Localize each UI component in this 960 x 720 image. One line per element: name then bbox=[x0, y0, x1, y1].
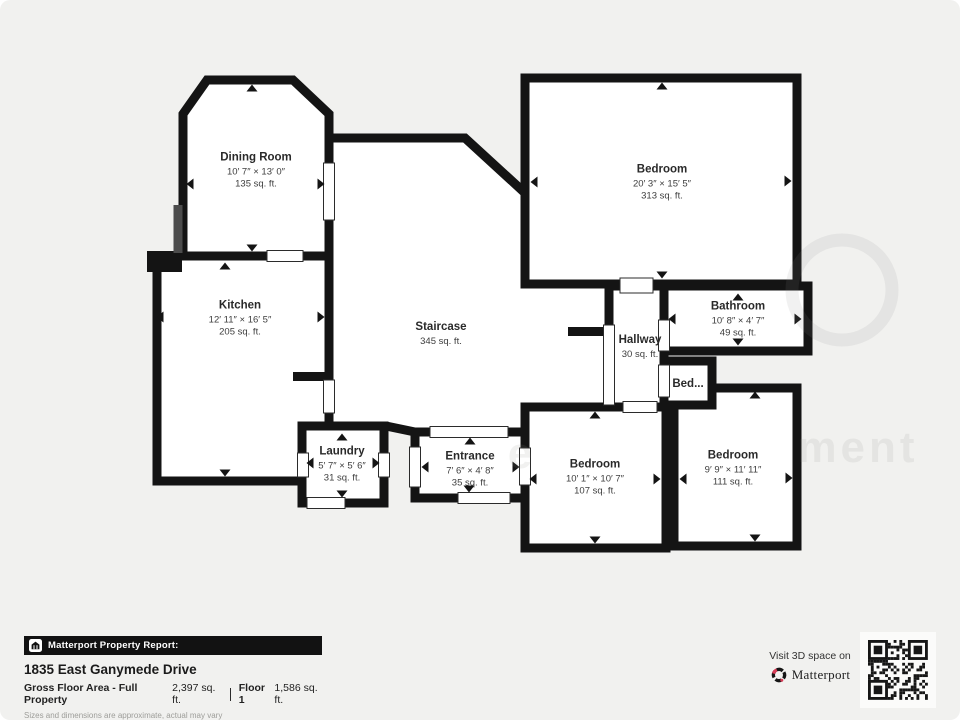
floorplan-canvas: e ment bbox=[0, 0, 960, 720]
room-dimensions: 7′ 6″ × 4′ 8″ bbox=[445, 465, 494, 478]
room-name: Staircase bbox=[415, 320, 466, 336]
room-label-bed-closet: Bed... bbox=[672, 377, 703, 393]
room-name: Kitchen bbox=[209, 298, 272, 314]
room-dimensions: 12′ 11″ × 16′ 5″ bbox=[209, 314, 272, 327]
property-address: 1835 East Ganymede Drive bbox=[24, 662, 324, 677]
room-label-bedroom-right: Bedroom 9′ 9″ × 11′ 11″ 111 sq. ft. bbox=[705, 448, 762, 489]
floor-area-metrics: Gross Floor Area - Full Property 2,397 s… bbox=[24, 682, 324, 706]
door-opening bbox=[307, 498, 345, 509]
door-opening bbox=[324, 380, 335, 413]
report-banner: Matterport Property Report: bbox=[24, 636, 322, 655]
cta-panel: Visit 3D space on Matterport bbox=[756, 650, 864, 684]
wall-opening bbox=[430, 427, 508, 438]
room-area: 205 sq. ft. bbox=[209, 327, 272, 340]
room-area: 49 sq. ft. bbox=[711, 328, 765, 341]
room-area: 345 sq. ft. bbox=[415, 335, 466, 348]
door-opening bbox=[620, 278, 653, 293]
room-label-staircase: Staircase 345 sq. ft. bbox=[415, 320, 466, 348]
door-opening bbox=[298, 453, 309, 477]
matterport-logo-icon bbox=[770, 666, 788, 684]
svg-text:e: e bbox=[508, 429, 532, 478]
room-dimensions: 9′ 9″ × 11′ 11″ bbox=[705, 464, 762, 477]
floorplan-report-page: e ment Dining Room 10′ 7″ × 13′ 0″ 135 s… bbox=[0, 0, 960, 720]
room-name: Bedroom bbox=[705, 448, 762, 464]
room-label-bedroom-master: Bedroom 20′ 3″ × 15′ 5″ 313 sq. ft. bbox=[633, 162, 691, 203]
floor-label: Floor 1 bbox=[239, 682, 271, 706]
room-name: Dining Room bbox=[220, 150, 292, 166]
wall-shaded-segment bbox=[174, 205, 183, 253]
matterport-wordmark: Matterport bbox=[792, 667, 851, 683]
room-area: 30 sq. ft. bbox=[619, 348, 662, 361]
door-opening bbox=[458, 493, 510, 504]
door-opening bbox=[379, 453, 390, 477]
room-name: Bedroom bbox=[566, 457, 624, 473]
gross-floor-area-value: 2,397 sq. ft. bbox=[172, 682, 222, 706]
room-name: Laundry bbox=[318, 444, 366, 460]
qr-code bbox=[860, 632, 936, 708]
room-label-entrance: Entrance 7′ 6″ × 4′ 8″ 35 sq. ft. bbox=[445, 449, 494, 490]
door-opening bbox=[623, 402, 657, 413]
visit-3d-text: Visit 3D space on bbox=[756, 650, 864, 662]
room-area: 135 sq. ft. bbox=[220, 179, 292, 192]
wall-opening bbox=[267, 251, 303, 262]
floor-value: 1,586 sq. ft. bbox=[274, 682, 324, 706]
room-label-bedroom-middle: Bedroom 10′ 1″ × 10′ 7″ 107 sq. ft. bbox=[566, 457, 624, 498]
room-dimensions: 20′ 3″ × 15′ 5″ bbox=[633, 178, 691, 191]
room-dimensions: 10′ 7″ × 13′ 0″ bbox=[220, 166, 292, 179]
room-dimensions: 5′ 7″ × 5′ 6″ bbox=[318, 460, 366, 473]
room-name: Hallway bbox=[619, 333, 662, 349]
room-label-bathroom: Bathroom 10′ 8″ × 4′ 7″ 49 sq. ft. bbox=[711, 299, 765, 340]
disclaimer-text: Sizes and dimensions are approximate, ac… bbox=[24, 711, 324, 720]
room-area: 35 sq. ft. bbox=[445, 478, 494, 491]
room-dimensions: 10′ 8″ × 4′ 7″ bbox=[711, 315, 765, 328]
matterport-house-icon bbox=[29, 639, 42, 652]
door-opening bbox=[604, 325, 615, 405]
report-banner-title: Matterport Property Report: bbox=[48, 640, 179, 651]
window-opening bbox=[324, 163, 335, 220]
room-label-hallway: Hallway 30 sq. ft. bbox=[619, 333, 662, 361]
room-label-laundry: Laundry 5′ 7″ × 5′ 6″ 31 sq. ft. bbox=[318, 444, 366, 485]
room-name: Bathroom bbox=[711, 299, 765, 315]
door-opening bbox=[659, 365, 670, 397]
room-area: 313 sq. ft. bbox=[633, 191, 691, 204]
gross-floor-area-label: Gross Floor Area - Full Property bbox=[24, 682, 168, 706]
room-name: Entrance bbox=[445, 449, 494, 465]
room-label-dining-room: Dining Room 10′ 7″ × 13′ 0″ 135 sq. ft. bbox=[220, 150, 292, 191]
room-label-kitchen: Kitchen 12′ 11″ × 16′ 5″ 205 sq. ft. bbox=[209, 298, 272, 339]
room-dimensions: 10′ 1″ × 10′ 7″ bbox=[566, 473, 624, 486]
metrics-divider bbox=[230, 688, 231, 701]
svg-text:ment: ment bbox=[797, 423, 918, 472]
room-area: 31 sq. ft. bbox=[318, 473, 366, 486]
room-area: 107 sq. ft. bbox=[566, 486, 624, 499]
report-panel: Matterport Property Report: 1835 East Ga… bbox=[24, 636, 324, 720]
room-name: Bed... bbox=[672, 377, 703, 393]
room-area: 111 sq. ft. bbox=[705, 477, 762, 490]
room-name: Bedroom bbox=[633, 162, 691, 178]
door-opening bbox=[410, 447, 421, 487]
